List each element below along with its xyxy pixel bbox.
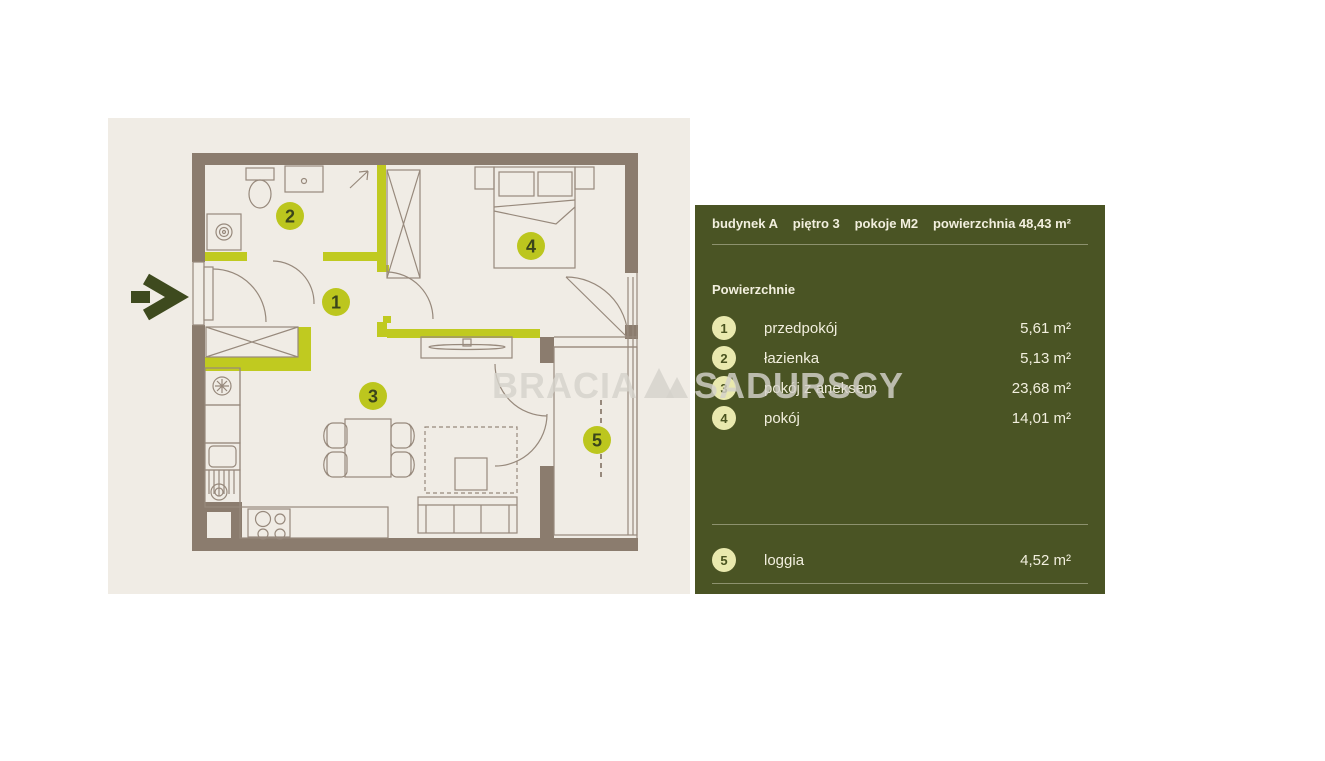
apartment-info-panel: budynek A piętro 3 pokoje M2 powierzchni…	[695, 205, 1105, 594]
wall-right-upper	[625, 153, 638, 273]
divider	[712, 244, 1088, 245]
partition-bath-left	[205, 252, 247, 261]
room-number-badge: 5	[712, 548, 736, 572]
room-badge-5: 5	[583, 426, 611, 454]
partition-walls	[205, 165, 540, 371]
room-area: 5,13 m²	[1020, 350, 1071, 367]
dining-table-icon	[345, 419, 391, 477]
room-name: pokój z aneksem	[764, 380, 877, 397]
room-name: loggia	[764, 552, 804, 569]
chair-icon	[324, 423, 415, 477]
room-badge-4: 4	[517, 232, 545, 260]
coffee-table-icon	[455, 458, 487, 490]
wall-center-lower	[540, 466, 554, 538]
room-area: 23,68 m²	[1012, 380, 1071, 397]
room-name: pokój	[764, 410, 800, 427]
svg-text:3: 3	[368, 387, 378, 407]
closet-icon	[206, 327, 298, 357]
sink-icon	[285, 166, 323, 192]
partition-tvwall-end	[377, 322, 387, 337]
entrance-door	[193, 262, 266, 325]
panel-header: budynek A piętro 3 pokoje M2 powierzchni…	[695, 205, 1105, 231]
room-row-przedpokoj: 1 przedpokój 5,61 m²	[695, 313, 1105, 343]
balcony-door-arc	[566, 277, 628, 338]
walls	[192, 153, 638, 551]
room-badge-2: 2	[276, 202, 304, 230]
fixtures	[193, 166, 637, 539]
nightstand-icon	[475, 167, 494, 189]
room-badge-1: 1	[322, 288, 350, 316]
room-row-pokoj-z-aneksem: 3 pokój z aneksem 23,68 m²	[695, 373, 1105, 403]
shower-arrow-icon	[350, 171, 368, 188]
divider	[712, 524, 1088, 525]
wardrobe-icon	[387, 170, 420, 278]
header-building: budynek A	[712, 216, 778, 231]
loggia-glazing	[628, 273, 637, 538]
nightstand-icon	[575, 167, 594, 189]
floorplan-canvas: 1 2 3 4 5	[108, 118, 690, 594]
svg-text:5: 5	[592, 431, 602, 451]
room-row-lazienka: 2 łazienka 5,13 m²	[695, 343, 1105, 373]
room-badge-3: 3	[359, 382, 387, 410]
divider	[712, 583, 1088, 584]
room-row-pokoj: 4 pokój 14,01 m²	[695, 403, 1105, 433]
room-area: 5,61 m²	[1020, 320, 1071, 337]
rug-icon	[425, 427, 517, 493]
wall-bottom	[192, 538, 638, 551]
door-hinge-tab	[383, 316, 391, 323]
room-number-badge: 2	[712, 346, 736, 370]
section-title: Powierzchnie	[712, 282, 1088, 297]
corner-notch	[205, 165, 231, 178]
wall-top	[192, 153, 638, 165]
room-badges: 1 2 3 4 5	[276, 202, 611, 454]
svg-text:4: 4	[526, 237, 536, 257]
loggia-outline	[554, 273, 637, 538]
washing-machine-icon	[207, 214, 241, 250]
shaft-notch	[207, 512, 231, 538]
partition-closet-horizontal	[205, 357, 311, 371]
room-list: 1 przedpokój 5,61 m² 2 łazienka 5,13 m² …	[695, 313, 1105, 433]
room-number-badge: 1	[712, 316, 736, 340]
header-floor: piętro 3	[793, 216, 840, 231]
partition-bath-vertical	[377, 165, 386, 272]
partition-bath-right	[323, 252, 377, 261]
hall-door-arc	[387, 272, 433, 319]
svg-text:1: 1	[331, 293, 341, 313]
wall-left-upper	[192, 153, 205, 262]
stove-icon	[240, 507, 388, 539]
header-area: powierzchnia 48,43 m²	[933, 216, 1071, 231]
room-name: łazienka	[764, 350, 819, 367]
tv-cabinet-icon	[421, 337, 512, 358]
room-number-badge: 3	[712, 376, 736, 400]
room-number-badge: 4	[712, 406, 736, 430]
bathroom-door-arc	[273, 261, 314, 304]
entrance-arrow-icon	[131, 279, 177, 315]
wall-center-upper	[540, 337, 554, 363]
room-name: przedpokój	[764, 320, 837, 337]
floorplan-svg: 1 2 3 4 5	[108, 118, 690, 594]
header-rooms: pokoje M2	[855, 216, 919, 231]
french-doors-arc	[495, 364, 547, 466]
sofa-icon	[418, 497, 517, 533]
boiler-icon	[213, 377, 231, 395]
door-hinge-tab	[381, 265, 389, 272]
toilet-icon	[246, 168, 274, 208]
room-row-loggia: 5 loggia 4,52 m²	[695, 545, 1105, 575]
room-area: 4,52 m²	[1020, 552, 1071, 569]
kitchen-sink-icon	[205, 443, 240, 507]
room-area: 14,01 m²	[1012, 410, 1071, 427]
svg-text:2: 2	[285, 207, 295, 227]
